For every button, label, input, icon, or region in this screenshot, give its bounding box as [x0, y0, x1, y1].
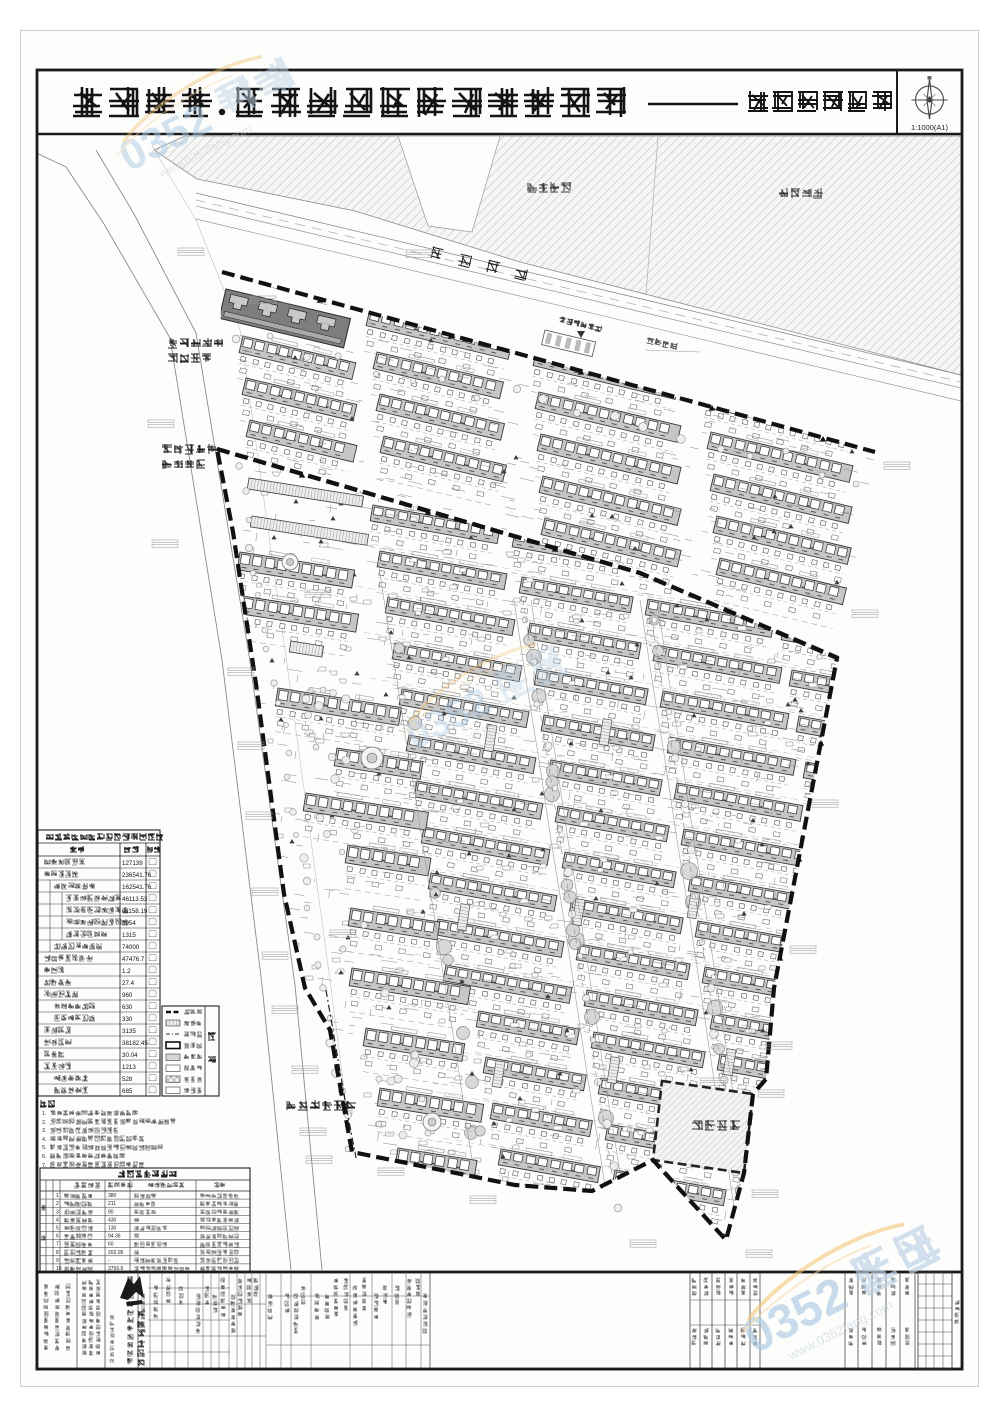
svg-text:127139: 127139 — [122, 860, 143, 867]
svg-text:1315: 1315 — [122, 932, 136, 939]
svg-text:27.4: 27.4 — [122, 980, 135, 987]
svg-text:3135: 3135 — [122, 1028, 136, 1035]
svg-text:8: 8 — [56, 1250, 59, 1256]
svg-text:430: 430 — [108, 1217, 117, 1223]
svg-text:5.: 5. — [42, 1145, 47, 1151]
svg-text:685: 685 — [122, 1088, 133, 1095]
svg-text:528: 528 — [122, 1076, 133, 1083]
svg-text:2.: 2. — [42, 1120, 47, 1126]
svg-text:30.04: 30.04 — [122, 1052, 138, 1059]
svg-text:202.05: 202.05 — [108, 1250, 124, 1256]
svg-text:236541.76: 236541.76 — [122, 872, 152, 879]
svg-text:211: 211 — [108, 1201, 116, 1207]
svg-text:330: 330 — [122, 1016, 133, 1023]
svg-text:7: 7 — [56, 1242, 59, 1248]
svg-text:1213: 1213 — [122, 1064, 136, 1071]
svg-text:1.2: 1.2 — [122, 968, 131, 975]
svg-text:38182.45: 38182.45 — [122, 1040, 148, 1047]
svg-text:4.: 4. — [42, 1137, 47, 1143]
svg-text:3954: 3954 — [122, 920, 136, 927]
svg-text:1: 1 — [56, 1193, 59, 1199]
svg-text:2: 2 — [56, 1201, 59, 1207]
svg-text:1.: 1. — [42, 1111, 47, 1117]
svg-text:9: 9 — [56, 1258, 59, 1264]
svg-text:6.: 6. — [42, 1154, 47, 1160]
svg-text:90: 90 — [108, 1209, 114, 1215]
svg-text:380: 380 — [108, 1193, 117, 1199]
svg-text:130: 130 — [108, 1226, 117, 1232]
svg-text:60: 60 — [108, 1242, 114, 1248]
svg-text:3: 3 — [56, 1209, 59, 1215]
svg-text:5: 5 — [56, 1226, 59, 1232]
svg-text:162541.76: 162541.76 — [122, 884, 152, 891]
svg-text:960: 960 — [122, 992, 133, 999]
svg-text:4: 4 — [56, 1217, 59, 1223]
svg-text:74000: 74000 — [122, 944, 140, 951]
svg-text:47476.7: 47476.7 — [122, 956, 145, 963]
svg-text:3.: 3. — [42, 1128, 47, 1134]
svg-text:1:1000(A1): 1:1000(A1) — [911, 123, 949, 132]
svg-text:94.36: 94.36 — [108, 1234, 121, 1240]
svg-text:91158.19: 91158.19 — [122, 908, 148, 915]
svg-text:630: 630 — [122, 1004, 133, 1011]
svg-text:46113.53: 46113.53 — [122, 896, 148, 903]
svg-text:6: 6 — [56, 1234, 59, 1240]
